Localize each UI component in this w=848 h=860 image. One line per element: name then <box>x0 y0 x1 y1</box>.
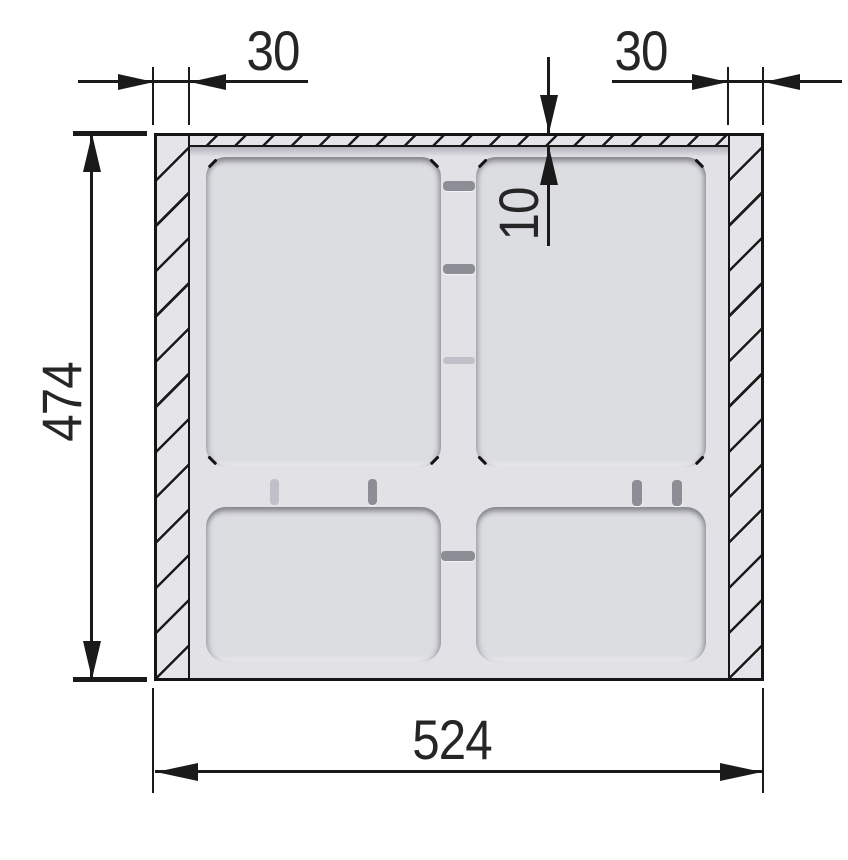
dimension-value: 474 <box>34 362 90 442</box>
arrow-icon <box>764 74 800 90</box>
dimension-value: 30 <box>614 23 667 79</box>
dimension-value: 10 <box>491 187 547 240</box>
dimension-value: 524 <box>412 712 492 768</box>
dimension-value: 30 <box>246 23 299 79</box>
arrow-icon <box>83 134 101 172</box>
arrow-icon <box>190 74 226 90</box>
extension-line <box>762 688 764 793</box>
arrow-icon <box>720 763 762 781</box>
arrow-icon <box>692 74 728 90</box>
arrow-icon <box>156 763 198 781</box>
arrow-icon <box>118 74 154 90</box>
extension-line <box>152 688 154 793</box>
panel-outline <box>154 133 764 681</box>
arrow-icon <box>83 641 101 679</box>
technical-drawing: 30 30 10 474 524 <box>0 0 848 860</box>
arrow-icon <box>540 95 558 133</box>
